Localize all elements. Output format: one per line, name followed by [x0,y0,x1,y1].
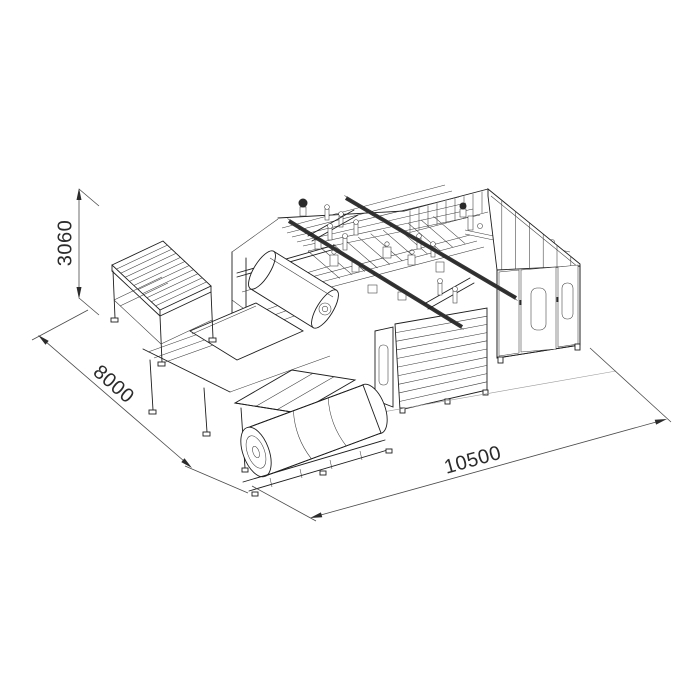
dimension-height-label: 3060 [54,220,76,267]
panel-sheet [190,303,303,360]
enclosure-doors [499,265,578,356]
machine-isometric-drawing: 3060 8000 10500 [0,0,700,700]
door-hinge [557,297,559,302]
machine-drawing-page: 3060 8000 10500 [0,0,700,700]
dimension-depth-label: 8000 [89,361,139,408]
infeed-roller-table [111,241,216,366]
dimension-height: 3060 [54,188,99,315]
door-hinge [520,300,522,305]
